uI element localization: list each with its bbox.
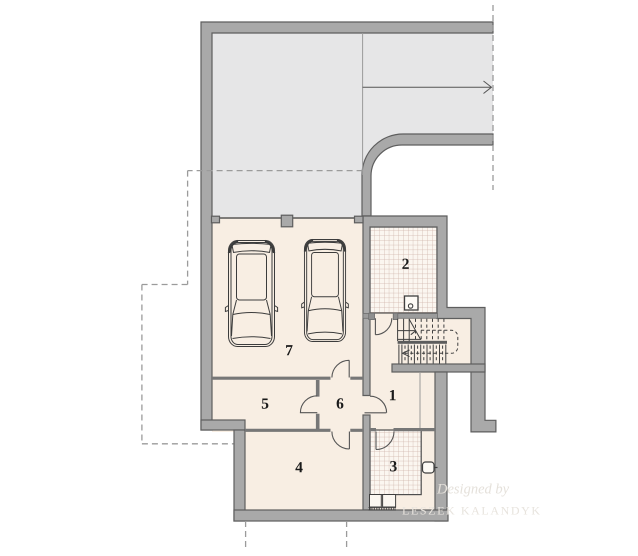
svg-text:LESZEK KALANDYK: LESZEK KALANDYK: [402, 504, 542, 518]
svg-text:Designed by: Designed by: [436, 482, 510, 498]
